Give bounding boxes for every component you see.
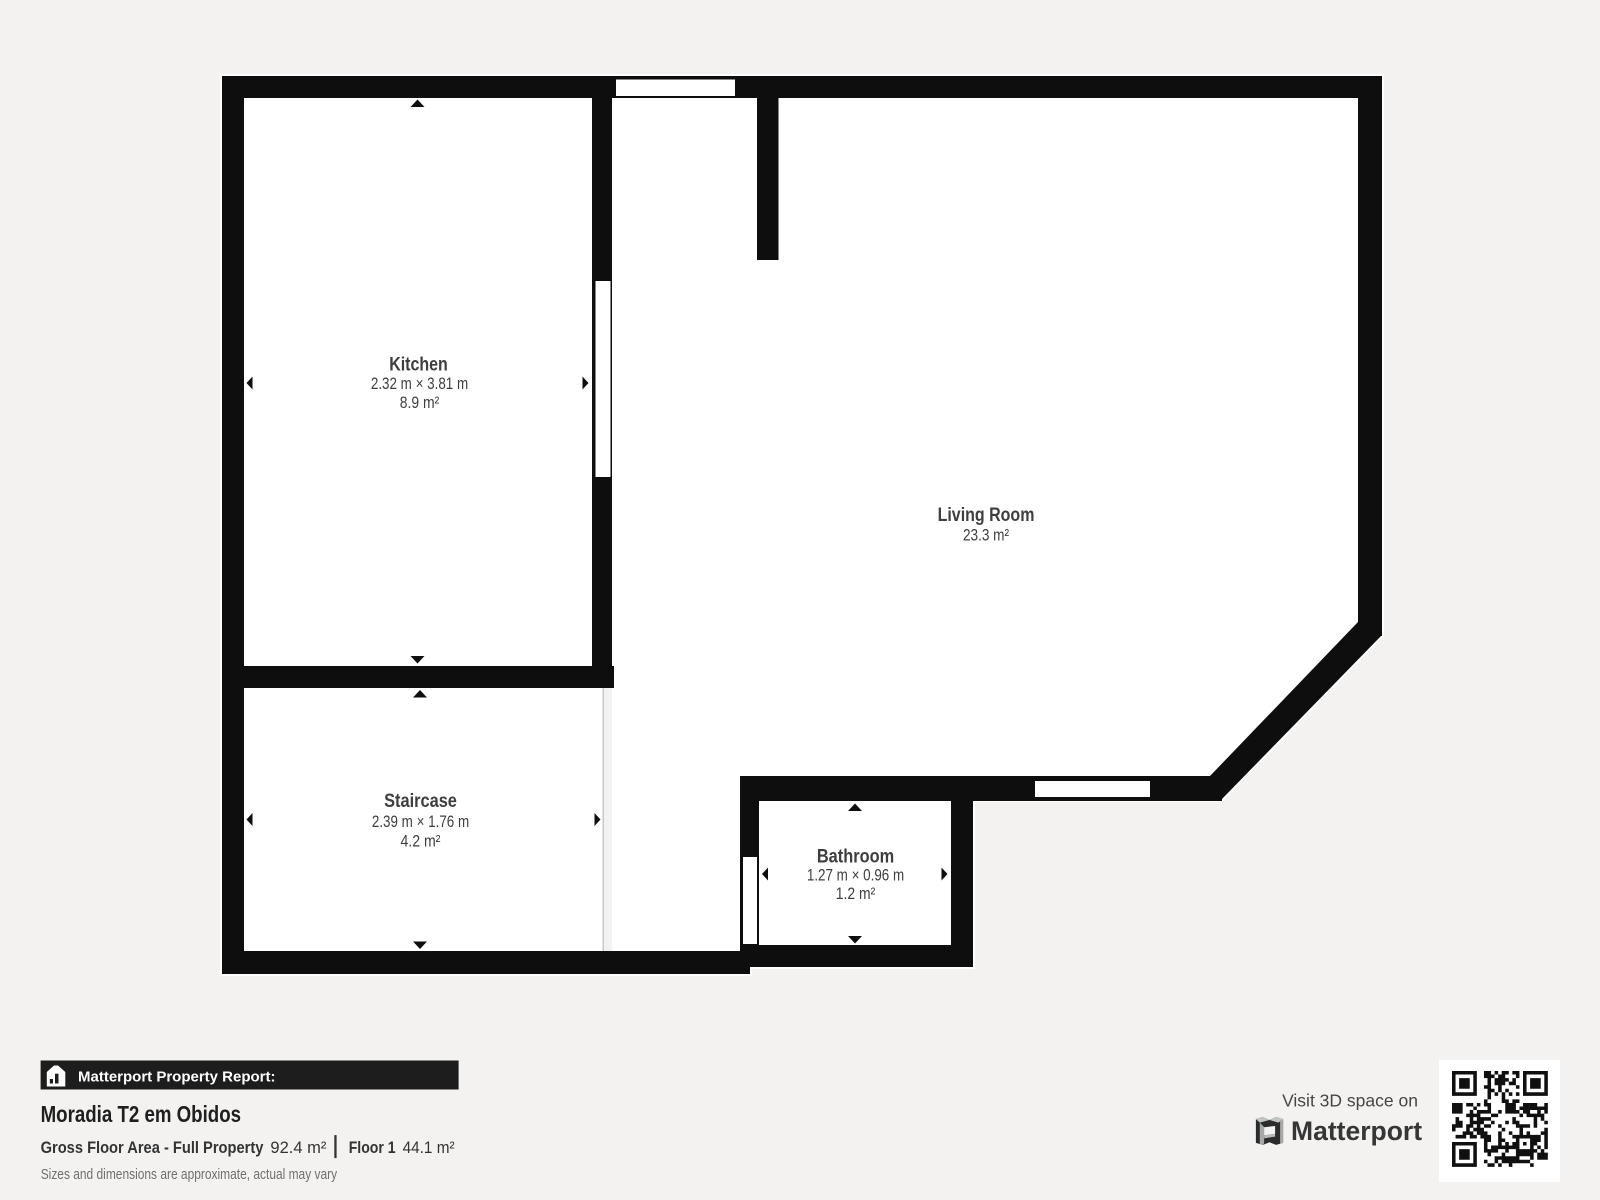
svg-text:Matterport Property Report:: Matterport Property Report: xyxy=(78,1069,276,1086)
svg-text:Moradia T2 em Obidos: Moradia T2 em Obidos xyxy=(41,1102,241,1127)
svg-text:Floor 1: Floor 1 xyxy=(349,1139,396,1157)
svg-text:44.1 m²: 44.1 m² xyxy=(403,1140,455,1158)
svg-text:Sizes and dimensions are appro: Sizes and dimensions are approximate, ac… xyxy=(41,1166,338,1182)
svg-text:Visit 3D space on: Visit 3D space on xyxy=(1282,1091,1418,1111)
svg-text:Matterport: Matterport xyxy=(1291,1116,1422,1146)
svg-text:92.4 m²: 92.4 m² xyxy=(270,1139,326,1157)
svg-text:Gross Floor Area - Full Proper: Gross Floor Area - Full Property xyxy=(41,1139,264,1157)
